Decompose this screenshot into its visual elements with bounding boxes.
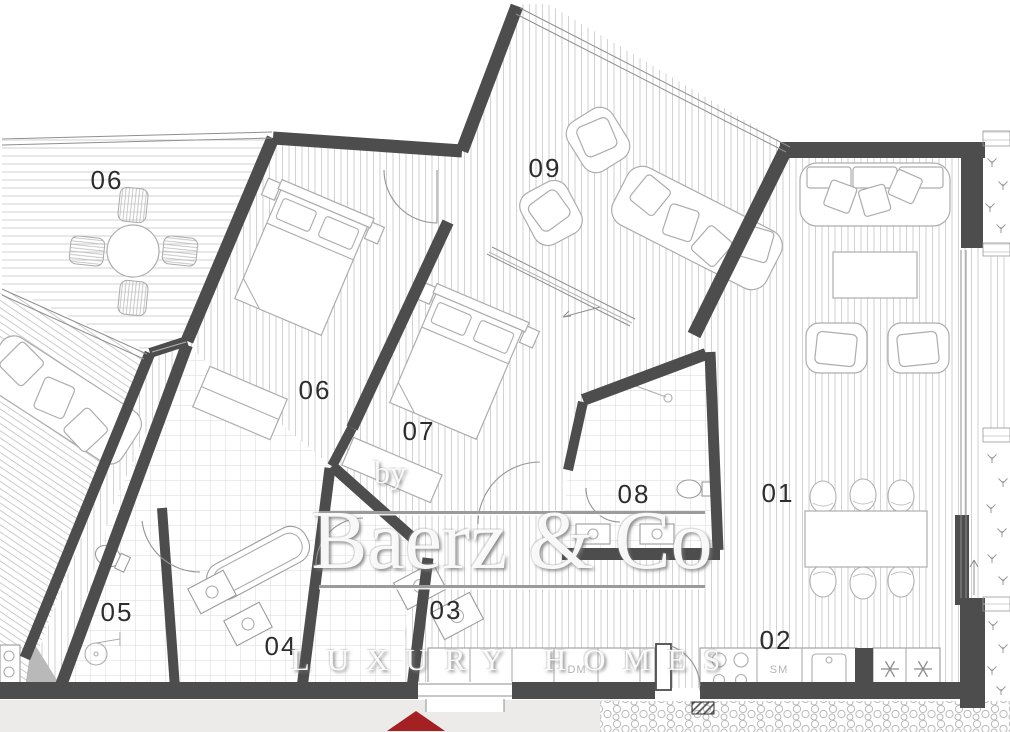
planter-band-3 xyxy=(983,428,1010,442)
planter-plants-ne xyxy=(986,159,1008,234)
room-label-bedroom-a: 06 xyxy=(299,375,332,405)
wall-kitchen-pier xyxy=(855,648,873,690)
bottom-gray-band xyxy=(0,700,620,732)
floorplan-drawing: DM SM xyxy=(0,0,1010,732)
entry-sill-hatch xyxy=(692,702,714,714)
planter-band-2 xyxy=(983,243,1010,256)
living-armchair-1 xyxy=(806,323,867,373)
planter-band-4 xyxy=(983,597,1010,611)
planter-band-1 xyxy=(983,131,1010,146)
entry-door-leaf xyxy=(656,644,671,690)
living-armchair-2 xyxy=(888,323,949,373)
wall-south-1 xyxy=(0,682,418,699)
room-label-living: 01 xyxy=(762,478,795,508)
planters xyxy=(983,131,1010,695)
room-label-terrace: 09 xyxy=(529,153,562,183)
room-label-kitchen: 02 xyxy=(760,625,793,655)
planter-plants-e xyxy=(987,455,1008,586)
balcony-deck-strip xyxy=(985,256,1010,428)
wall-south-2 xyxy=(512,682,655,699)
room-label-upper-terrace: 06 xyxy=(91,165,124,195)
dining-set xyxy=(805,479,927,599)
living-sofa xyxy=(800,163,950,226)
vanity-bathroom-main-2 xyxy=(640,524,674,544)
entry-step xyxy=(426,699,504,712)
room-label-bedroom-b: 07 xyxy=(403,416,436,446)
wall-se-block xyxy=(960,598,985,708)
gravel-strip-pattern xyxy=(600,701,1010,732)
floorplan-page: DM SM xyxy=(0,0,1010,732)
room-label-bathroom-b: 05 xyxy=(101,597,134,627)
coffee-table xyxy=(833,252,917,298)
dm-appliance-label: DM xyxy=(567,664,586,676)
vanity-bathroom-main-1 xyxy=(576,524,610,544)
wall-ne-pier xyxy=(961,142,983,248)
wall-south-3 xyxy=(700,682,960,699)
sm-appliance-label: SM xyxy=(770,664,789,676)
wall-east-mid xyxy=(955,515,969,605)
room-label-bathroom-main: 08 xyxy=(618,479,651,509)
toilet-bathroom-main xyxy=(677,480,711,498)
planter-plants-se xyxy=(988,622,1008,696)
room-label-hallway: 03 xyxy=(430,595,463,625)
room-label-bathroom-a: 04 xyxy=(265,631,298,661)
